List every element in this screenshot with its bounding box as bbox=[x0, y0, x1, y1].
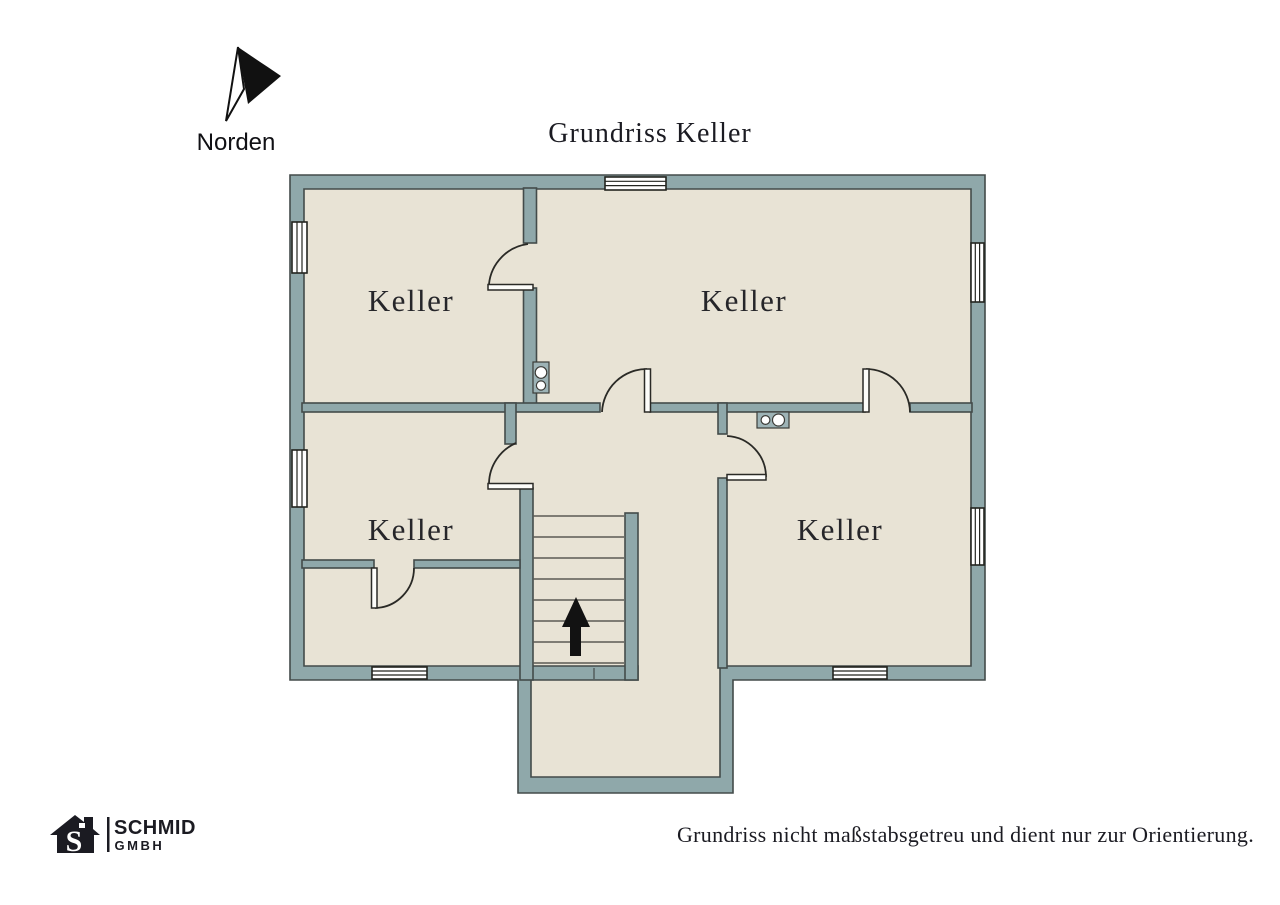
wall-stair-right bbox=[625, 513, 638, 680]
interior-floor bbox=[304, 189, 971, 777]
wall-middle-right bbox=[910, 403, 972, 412]
compass-label: Norden bbox=[197, 129, 276, 156]
wall-top-rooms-upper bbox=[524, 188, 537, 243]
fixture-connections-left bbox=[533, 362, 549, 393]
window-right-bottom bbox=[971, 508, 984, 565]
wall-middle-left bbox=[302, 403, 600, 412]
wall-room4-stub bbox=[718, 403, 727, 434]
door-leaf-hall-to-top-right bbox=[645, 369, 651, 412]
window-left-bottom bbox=[292, 450, 307, 507]
north-arrow-icon bbox=[226, 47, 281, 121]
wall-hall-left-stub bbox=[505, 403, 516, 444]
wall-subroom-left bbox=[302, 560, 374, 568]
room-label-top-left: Keller bbox=[368, 283, 454, 318]
company-logo: S SCHMID GMBH bbox=[50, 815, 196, 858]
door-leaf-top-rooms bbox=[488, 285, 533, 291]
wall-room4-left bbox=[718, 478, 727, 668]
logo-company-name: SCHMID bbox=[114, 817, 196, 839]
floorplan-canvas: Norden Grundriss Keller bbox=[0, 0, 1280, 905]
window-bottom-left bbox=[372, 667, 427, 679]
logo-divider bbox=[107, 817, 110, 852]
wall-middle-center bbox=[650, 403, 865, 412]
logo-company-suffix: GMBH bbox=[115, 838, 165, 853]
window-left-top bbox=[292, 222, 307, 273]
window-bottom-right bbox=[833, 667, 887, 679]
window-top bbox=[605, 177, 666, 190]
floorplan-page: Norden Grundriss Keller bbox=[0, 0, 1280, 905]
door-leaf-subroom bbox=[372, 568, 378, 608]
room-label-bottom-right: Keller bbox=[797, 512, 883, 547]
room-label-bottom-left: Keller bbox=[368, 512, 454, 547]
wall-hall-left bbox=[520, 488, 533, 680]
wall-subroom-right bbox=[414, 560, 520, 568]
disclaimer-text: Grundriss nicht maßstabsgetreu und dient… bbox=[677, 822, 1254, 847]
logo-monogram: S bbox=[66, 825, 83, 858]
fixture-connections-right bbox=[757, 412, 789, 428]
door-leaf-hall-to-bottom-right bbox=[727, 475, 766, 481]
window-right-top bbox=[971, 243, 984, 302]
room-label-top-right: Keller bbox=[701, 283, 787, 318]
page-title: Grundriss Keller bbox=[548, 118, 751, 149]
door-leaf-top-right-to-bottom-right bbox=[863, 369, 869, 412]
north-arrow-wing bbox=[238, 47, 281, 104]
door-leaf-bottom-left-room bbox=[488, 484, 533, 490]
